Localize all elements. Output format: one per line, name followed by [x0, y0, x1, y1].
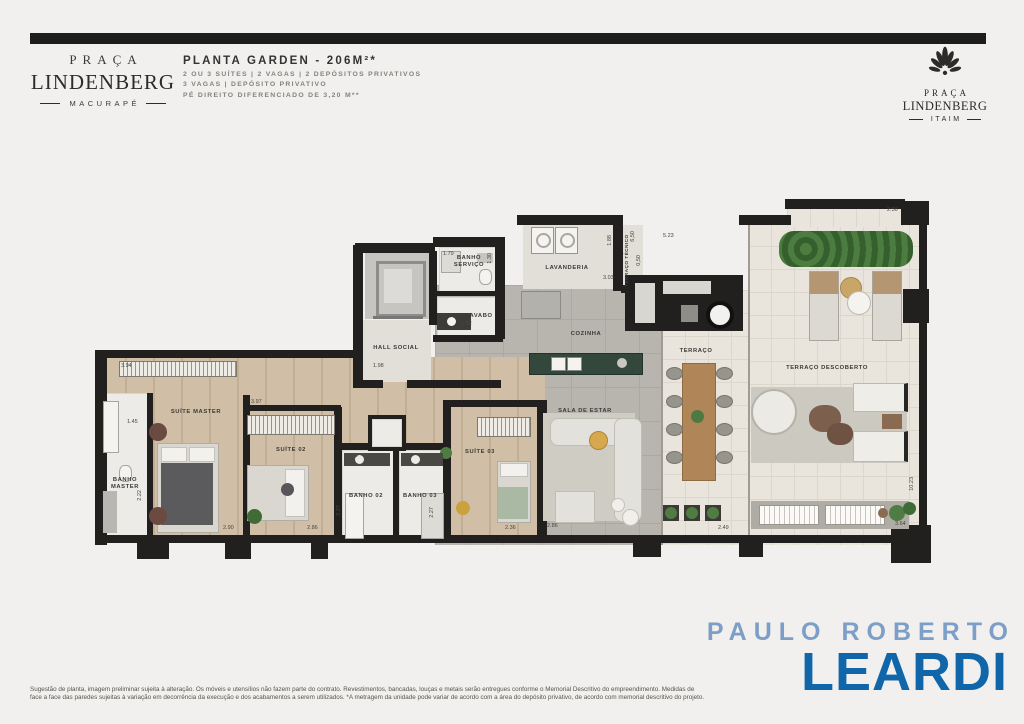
hedge-plants	[779, 231, 913, 267]
room-label-suite-03: SUÍTE 03	[465, 449, 495, 455]
wall-segment	[407, 380, 501, 388]
wall-segment	[355, 243, 435, 253]
cooktop-icon	[567, 357, 582, 371]
floor-pillow	[611, 498, 625, 512]
dim-label: 3.94	[121, 363, 132, 369]
dim-label: 3.03	[603, 275, 614, 281]
dim-label: 2.49	[718, 525, 729, 531]
dim-label: 6,50	[630, 231, 636, 242]
room-label-hall-social: HALL SOCIAL	[373, 345, 418, 351]
slatted-bench	[759, 505, 819, 525]
brand-left-name: LINDENBERG	[28, 70, 178, 95]
sun-lounger	[809, 271, 839, 341]
bathtub	[103, 401, 119, 453]
dining-chair	[666, 395, 683, 408]
dim-label: 3.64	[895, 521, 906, 527]
room-label-lavabo: LAVABO	[465, 313, 492, 319]
dim-label: 2.86	[547, 523, 558, 529]
plan-info-line3: PÉ DIREITO DIFERENCIADO DE 3,20 M**	[183, 92, 421, 99]
dash-decoration	[146, 103, 166, 105]
wardrobe-suite-master	[119, 361, 237, 377]
room-label-banho-02: BANHO 02	[349, 493, 383, 499]
plan-info-line1: 2 OU 3 SUÍTES | 2 VAGAS | 2 DEPÓSITOS PR…	[183, 71, 421, 78]
wall-segment	[95, 535, 925, 543]
wall-segment	[243, 405, 341, 411]
pillow	[500, 463, 528, 477]
wall-segment	[443, 407, 451, 543]
wall-column	[137, 543, 169, 559]
dining-chair	[716, 395, 733, 408]
dining-chair	[716, 367, 733, 380]
dining-chair	[666, 367, 683, 380]
side-table	[847, 291, 871, 315]
bathtub	[345, 493, 364, 539]
floor-pillow	[622, 509, 639, 526]
wall-segment	[353, 245, 363, 387]
wall-column	[903, 289, 929, 323]
room-label-cozinha: COZINHA	[571, 331, 602, 337]
wall-segment	[435, 291, 499, 296]
wall-column	[633, 535, 661, 557]
room-label-lavanderia: LAVANDERIA	[545, 265, 588, 271]
counter-top	[663, 281, 711, 294]
leardi-logo: PAULO ROBERTO LEARDI	[707, 618, 1008, 697]
leardi-logo-name: LEARDI	[707, 647, 1008, 697]
plan-info-block: PLANTA GARDEN - 206M²* 2 OU 3 SUÍTES | 2…	[183, 55, 421, 99]
brand-right-sub: ITAIM	[928, 116, 961, 123]
sink	[447, 317, 456, 326]
brand-lindenberg-itaim: PRAÇA LINDENBERG ITAIM	[893, 45, 997, 123]
organic-coffee-table	[827, 423, 853, 445]
slatted-bench	[825, 505, 885, 525]
planter-box	[684, 505, 700, 521]
dim-label: 1.82	[461, 321, 472, 327]
wall-segment	[393, 450, 399, 540]
pillow	[161, 447, 187, 462]
side-table	[882, 414, 902, 429]
wall-segment	[517, 215, 621, 225]
blanket	[498, 487, 528, 519]
dash-decoration	[909, 119, 923, 120]
washer-drum	[536, 233, 551, 248]
pouf	[456, 501, 470, 515]
room-label-banho-03: BANHO 03	[403, 493, 437, 499]
elevator-cab-inner	[384, 269, 412, 303]
duvet	[161, 463, 213, 525]
toilet-icon	[479, 269, 492, 285]
wall-column	[225, 543, 251, 559]
brand-right-praca: PRAÇA	[893, 88, 997, 98]
wardrobe-suite-02	[247, 415, 335, 435]
dim-label: 2.27	[429, 507, 435, 518]
counter-top	[635, 283, 655, 323]
dim-label: 1.79	[443, 251, 454, 257]
plan-info-line2: 3 VAGAS | DEPÓSITO PRIVATIVO	[183, 81, 421, 88]
ottoman	[555, 491, 595, 523]
armchair	[853, 383, 908, 412]
brand-right-name: LINDENBERG	[893, 99, 997, 114]
dim-label: 5.23	[663, 233, 674, 239]
wall-segment	[443, 400, 547, 407]
dim-label: 1.49	[419, 453, 430, 459]
dim-label: 2.86	[307, 525, 318, 531]
island-sink	[617, 358, 627, 368]
sun-lounger	[872, 271, 902, 341]
counter-sink	[681, 305, 698, 322]
dim-label: 3.97	[251, 399, 262, 405]
dash-decoration	[40, 103, 60, 105]
wall-segment	[919, 221, 927, 533]
closet-nook	[368, 415, 406, 451]
dining-chair	[716, 451, 733, 464]
round-pillow	[281, 483, 294, 496]
room-label-sala-de-estar: SALA DE ESTAR	[558, 408, 612, 414]
room-label-banho-master: BANHO MASTER	[107, 477, 143, 490]
palmette-icon	[893, 45, 997, 86]
table-plant	[691, 410, 704, 423]
plant-icon	[247, 509, 262, 524]
vanity-counter	[103, 491, 117, 533]
dim-label: 10.23	[909, 477, 915, 491]
wall-segment	[433, 237, 503, 247]
fridge-counter	[521, 291, 561, 319]
room-label-banho-servico: BANHO SERVIÇO	[451, 255, 487, 268]
brand-left-sub: MACURAPÉ	[66, 99, 140, 108]
elevator-doors	[373, 316, 423, 319]
wall-column	[739, 539, 763, 557]
dim-label: 0,50	[636, 255, 642, 266]
wall-column	[311, 543, 328, 559]
room-label-terraco-descoberto: TERRAÇO DESCOBERTO	[786, 365, 868, 371]
wall-segment	[429, 251, 437, 325]
floor-hall-social	[361, 320, 431, 382]
floor-plan: SUÍTE MASTER BANHO MASTER SUÍTE 02 BANHO…	[85, 195, 941, 567]
bedside-plant	[149, 423, 167, 441]
top-rule	[30, 33, 986, 44]
cooktop-icon	[551, 357, 566, 371]
bedside-plant	[149, 507, 167, 525]
dim-label: 1.88	[607, 235, 613, 246]
wall-segment	[353, 380, 383, 388]
armchair	[853, 431, 908, 462]
dim-label: 1.45	[127, 419, 138, 425]
brand-lindenberg-macurape: PRAÇA LINDENBERG MACURAPÉ	[28, 52, 178, 108]
plant-icon	[903, 502, 916, 515]
grill-icon	[706, 301, 734, 329]
dining-chair	[666, 451, 683, 464]
wall-segment	[739, 215, 791, 225]
round-lounge-chair	[751, 389, 797, 435]
planter-box	[663, 505, 679, 521]
wall-segment	[334, 407, 342, 543]
coffee-table	[589, 431, 608, 450]
dash-decoration	[967, 119, 981, 120]
dim-label: 1.30	[487, 253, 493, 264]
dim-label: 2.56	[887, 207, 898, 213]
wall-segment	[613, 215, 623, 291]
planter-box	[705, 505, 721, 521]
wall-segment	[495, 237, 505, 339]
wall-column	[901, 201, 929, 225]
glass-wall	[748, 223, 750, 545]
wall-segment	[433, 335, 503, 342]
pot-icon	[878, 508, 888, 518]
dryer-drum	[560, 233, 575, 248]
wardrobe-suite-03	[477, 417, 531, 437]
dining-chair	[666, 423, 683, 436]
room-label-suite-master: SUÍTE MASTER	[171, 409, 221, 415]
dim-label: 2.22	[137, 490, 143, 501]
dim-label: 2.36	[505, 525, 516, 531]
room-label-terraco: TERRAÇO	[680, 348, 713, 354]
room-label-suite-02: SUÍTE 02	[276, 447, 306, 453]
dining-chair	[716, 423, 733, 436]
pillow	[189, 447, 215, 462]
dim-label: 2.90	[223, 525, 234, 531]
brand-left-praca: PRAÇA	[28, 52, 178, 68]
dim-label: 1.45	[347, 453, 358, 459]
plan-title: PLANTA GARDEN - 206M²*	[183, 55, 421, 67]
dim-label: 1.98	[373, 363, 384, 369]
wall-segment	[99, 350, 359, 358]
dim-label: 2.27	[336, 505, 342, 516]
